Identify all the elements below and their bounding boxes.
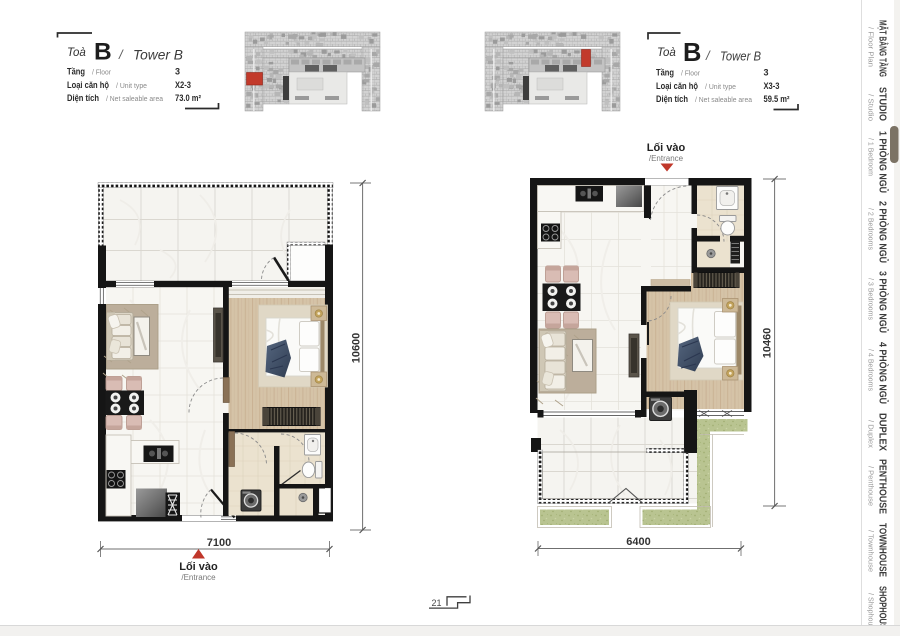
svg-text:/ Duplex: / Duplex: [867, 420, 876, 448]
svg-text:X2-3: X2-3: [175, 80, 191, 90]
svg-text:6400: 6400: [626, 536, 650, 548]
svg-text:/: /: [705, 48, 711, 63]
svg-text:B: B: [94, 39, 112, 66]
svg-text:/ 4 Bedrooms: / 4 Bedrooms: [867, 349, 876, 391]
svg-text:73.0 m²: 73.0 m²: [175, 93, 201, 103]
svg-text:7100: 7100: [207, 537, 231, 549]
svg-text:/ Unit type: / Unit type: [116, 81, 147, 90]
svg-text:/: /: [118, 47, 124, 62]
svg-text:PENTHOUSE: PENTHOUSE: [877, 459, 888, 514]
svg-text:3: 3: [175, 67, 180, 77]
svg-text:/ 1 Bedroom: / 1 Bedroom: [867, 138, 876, 176]
svg-text:59.5 m²: 59.5 m²: [764, 94, 790, 104]
svg-text:TOWNHOUSE: TOWNHOUSE: [877, 523, 888, 577]
svg-text:/ Net saleable area: / Net saleable area: [106, 94, 164, 103]
svg-text:/ 3 Bedrooms: / 3 Bedrooms: [867, 278, 876, 320]
svg-text:/ Floor: / Floor: [681, 69, 700, 78]
svg-text:Tower B: Tower B: [720, 49, 761, 64]
svg-text:3: 3: [764, 68, 769, 78]
svg-text:Tầng: Tầng: [67, 67, 85, 77]
svg-text:10600: 10600: [350, 333, 362, 364]
svg-text:Lối vào: Lối vào: [647, 142, 686, 154]
svg-text:/Entrance: /Entrance: [181, 573, 216, 582]
svg-text:MẶT BẰNG TẦNG: MẶT BẰNG TẦNG: [877, 20, 890, 77]
svg-text:B: B: [683, 39, 701, 67]
svg-text:/ Unit type: / Unit type: [705, 82, 736, 91]
svg-text:/ 2 Bedrooms: / 2 Bedrooms: [867, 208, 876, 250]
svg-text:21: 21: [431, 598, 441, 608]
svg-text:DUPLEX: DUPLEX: [877, 413, 888, 451]
svg-text:Lối vào: Lối vào: [179, 561, 218, 573]
svg-text:/ Floor Plan: / Floor Plan: [867, 27, 876, 67]
svg-text:Toà: Toà: [67, 47, 86, 59]
svg-text:X3-3: X3-3: [764, 81, 780, 91]
svg-text:1 PHÒNG NGỦ: 1 PHÒNG NGỦ: [877, 131, 890, 193]
svg-text:/ Net saleable area: / Net saleable area: [695, 95, 753, 104]
svg-text:3 PHÒNG NGỦ: 3 PHÒNG NGỦ: [877, 271, 890, 333]
svg-text:/ Floor: / Floor: [92, 68, 111, 77]
svg-text:/ Studio: / Studio: [867, 94, 876, 121]
svg-text:2 PHÒNG NGỦ: 2 PHÒNG NGỦ: [877, 201, 890, 263]
svg-text:/Entrance: /Entrance: [649, 154, 684, 163]
svg-text:Loại căn hộ: Loại căn hộ: [656, 81, 698, 91]
svg-text:10460: 10460: [761, 328, 773, 359]
svg-text:Tower B: Tower B: [133, 48, 183, 63]
svg-text:4 PHÒNG NGỦ: 4 PHÒNG NGỦ: [877, 342, 890, 404]
svg-text:/ Townhouse: / Townhouse: [867, 530, 876, 572]
svg-text:Diện tích: Diện tích: [656, 94, 688, 104]
svg-text:STUDIO: STUDIO: [877, 87, 888, 121]
svg-text:Diện tích: Diện tích: [67, 93, 99, 103]
svg-text:Toà: Toà: [657, 47, 676, 59]
svg-text:/ Penthouse: / Penthouse: [867, 466, 876, 506]
svg-text:Tầng: Tầng: [656, 68, 674, 78]
svg-text:Loại căn hộ: Loại căn hộ: [67, 80, 109, 90]
